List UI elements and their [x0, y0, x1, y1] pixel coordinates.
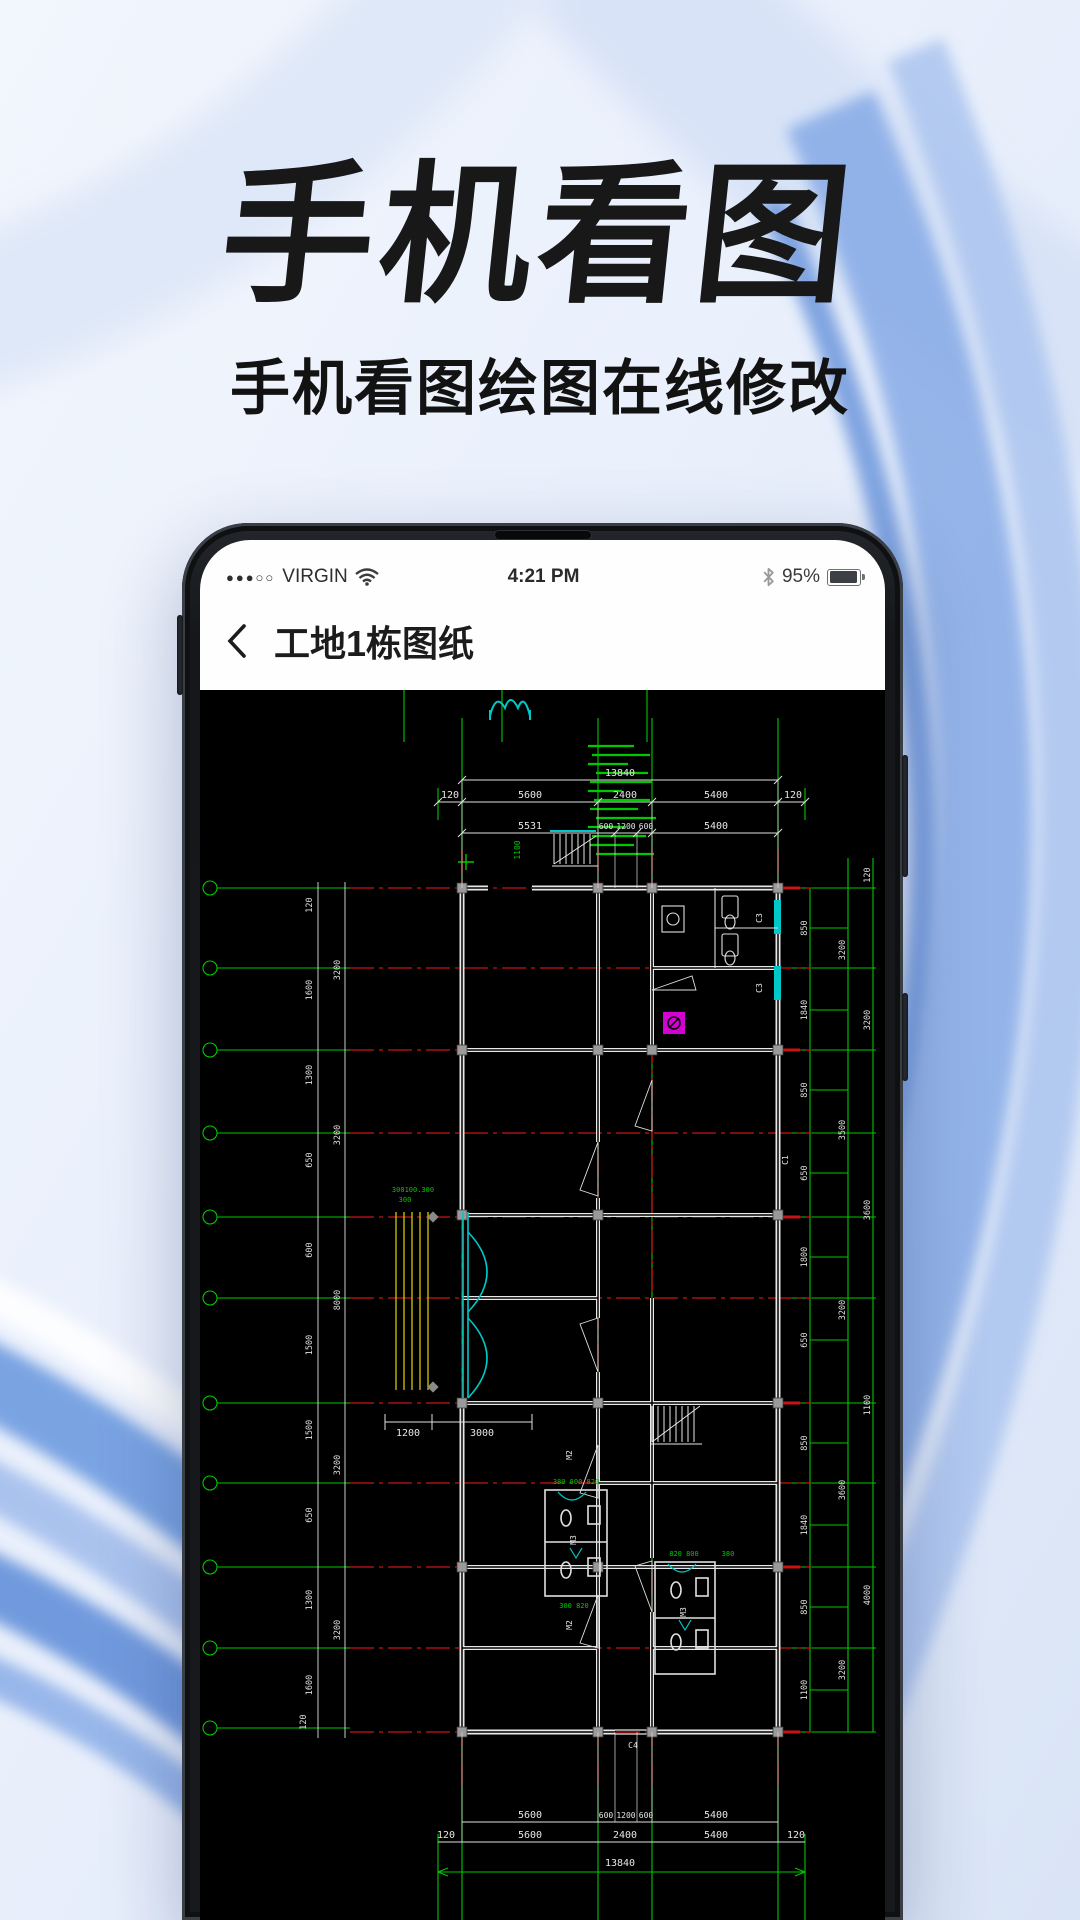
battery-icon — [827, 569, 861, 586]
svg-text:650: 650 — [800, 1165, 810, 1180]
banner-title: 手机看图 — [0, 112, 1080, 332]
svg-text:850: 850 — [800, 920, 810, 935]
svg-text:C4: C4 — [628, 1741, 638, 1750]
svg-text:120: 120 — [787, 1830, 805, 1841]
svg-text:600: 600 — [639, 1811, 654, 1820]
battery-percent: 95% — [782, 566, 820, 588]
svg-text:120: 120 — [305, 897, 315, 912]
bathroom-unit-2 — [655, 1562, 715, 1674]
svg-text:13840: 13840 — [605, 1858, 635, 1869]
svg-text:600: 600 — [639, 822, 654, 831]
cyan-doors-windows — [463, 700, 781, 1630]
svg-text:380: 380 — [722, 1550, 735, 1558]
svg-text:650: 650 — [305, 1152, 315, 1167]
svg-text:380 800 820: 380 800 820 — [553, 1478, 599, 1486]
svg-text:120: 120 — [437, 1830, 455, 1841]
cad-drawing-canvas[interactable]: 13840 120 5600 2400 5400 120 5531 600 12… — [200, 690, 885, 1920]
svg-text:3200: 3200 — [333, 960, 343, 980]
green-note-block — [458, 746, 656, 870]
svg-text:3200: 3200 — [838, 940, 848, 960]
clock: 4:21 PM — [508, 566, 580, 588]
bluetooth-icon — [762, 567, 775, 587]
svg-text:300100.300: 300100.300 — [392, 1186, 434, 1194]
ramp — [385, 1211, 532, 1430]
svg-text:M3: M3 — [679, 1607, 688, 1617]
svg-text:5600: 5600 — [518, 1830, 542, 1841]
svg-text:1500: 1500 — [305, 1420, 315, 1440]
interior-walls — [462, 888, 778, 1732]
svg-text:120: 120 — [863, 867, 873, 882]
svg-text:3200: 3200 — [838, 1660, 848, 1680]
svg-text:1200: 1200 — [616, 1811, 635, 1820]
magenta-symbol — [663, 1012, 685, 1034]
svg-text:1100: 1100 — [513, 840, 522, 859]
phone-mockup: ●●●○○ VIRGIN 4:21 PM 95% — [182, 523, 903, 1920]
svg-text:C3: C3 — [755, 983, 764, 993]
svg-text:3600: 3600 — [863, 1200, 873, 1220]
svg-text:820 800: 820 800 — [669, 1550, 699, 1558]
svg-text:M3: M3 — [569, 1535, 578, 1545]
svg-text:3200: 3200 — [333, 1455, 343, 1475]
svg-text:120: 120 — [784, 790, 802, 801]
svg-text:650: 650 — [305, 1507, 315, 1522]
svg-text:3200: 3200 — [863, 1010, 873, 1030]
back-button[interactable] — [226, 623, 248, 659]
svg-text:5531: 5531 — [518, 821, 542, 832]
phone-power-button — [902, 993, 908, 1081]
svg-text:300: 300 — [399, 1196, 412, 1204]
svg-text:3000: 3000 — [470, 1428, 494, 1439]
stairs-bottom — [650, 1406, 702, 1444]
column-markers — [457, 883, 783, 1737]
svg-text:8000: 8000 — [333, 1290, 343, 1310]
svg-text:M2: M2 — [565, 1620, 574, 1630]
svg-text:5600: 5600 — [518, 790, 542, 801]
svg-text:M2: M2 — [565, 1450, 574, 1460]
svg-text:850: 850 — [800, 1599, 810, 1614]
svg-text:3200: 3200 — [333, 1620, 343, 1640]
wall-cores — [462, 888, 778, 1732]
svg-text:1100: 1100 — [800, 1680, 810, 1700]
stairs-top — [552, 834, 598, 866]
bathroom-fixtures-top — [662, 888, 778, 968]
svg-text:2400: 2400 — [613, 1830, 637, 1841]
svg-text:1840: 1840 — [800, 1000, 810, 1020]
svg-text:3200: 3200 — [838, 1300, 848, 1320]
building-walls — [462, 888, 778, 1732]
svg-text:600: 600 — [599, 1811, 614, 1820]
wifi-icon — [355, 568, 379, 586]
signal-strength-icon: ●●●○○ — [226, 570, 275, 585]
svg-text:650: 650 — [800, 1332, 810, 1347]
svg-text:1840: 1840 — [800, 1515, 810, 1535]
phone-screen: ●●●○○ VIRGIN 4:21 PM 95% — [200, 540, 885, 1920]
svg-text:2400: 2400 — [613, 790, 637, 801]
svg-text:600: 600 — [305, 1242, 315, 1257]
carrier-label: VIRGIN — [282, 566, 347, 588]
svg-text:1300: 1300 — [305, 1590, 315, 1610]
svg-text:C3: C3 — [755, 913, 764, 923]
status-bar: ●●●○○ VIRGIN 4:21 PM 95% — [200, 540, 885, 592]
svg-text:4000: 4000 — [863, 1585, 873, 1605]
svg-text:600: 600 — [599, 822, 614, 831]
svg-text:1100: 1100 — [863, 1395, 873, 1415]
banner-subtitle: 手机看图绘图在线修改 — [0, 340, 1080, 427]
svg-text:5400: 5400 — [704, 1810, 728, 1821]
svg-text:1200: 1200 — [396, 1428, 420, 1439]
svg-text:5400: 5400 — [704, 790, 728, 801]
left-dimension-chain: 120 1600 1300 650 600 1500 1500 650 1300… — [299, 897, 343, 1729]
svg-text:1300: 1300 — [305, 1065, 315, 1085]
svg-text:120: 120 — [299, 1714, 309, 1729]
svg-text:1200: 1200 — [616, 822, 635, 831]
svg-text:3200: 3200 — [333, 1125, 343, 1145]
red-wall-stubs — [778, 888, 800, 1732]
svg-text:300 820: 300 820 — [559, 1602, 589, 1610]
dimension-lines — [318, 776, 809, 1842]
svg-text:1500: 1500 — [305, 1335, 315, 1355]
nav-bar: 工地1栋图纸 — [200, 592, 885, 690]
phone-speaker — [494, 530, 592, 540]
svg-text:1800: 1800 — [800, 1247, 810, 1267]
svg-text:120: 120 — [441, 790, 459, 801]
svg-text:3600: 3600 — [838, 1480, 848, 1500]
svg-text:1600: 1600 — [305, 980, 315, 1000]
svg-text:C1: C1 — [781, 1155, 790, 1165]
svg-text:850: 850 — [800, 1435, 810, 1450]
svg-text:1600: 1600 — [305, 1675, 315, 1695]
svg-text:13840: 13840 — [605, 768, 635, 779]
svg-text:5400: 5400 — [704, 821, 728, 832]
svg-text:3500: 3500 — [838, 1120, 848, 1140]
svg-text:850: 850 — [800, 1082, 810, 1097]
svg-text:5400: 5400 — [704, 1830, 728, 1841]
right-dimension-chain: 850 1840 850 650 1800 650 850 1840 850 1… — [800, 867, 873, 1700]
page-title: 工地1栋图纸 — [274, 615, 474, 667]
phone-volume-button — [902, 755, 908, 877]
phone-left-button — [177, 615, 183, 695]
svg-text:5600: 5600 — [518, 1810, 542, 1821]
